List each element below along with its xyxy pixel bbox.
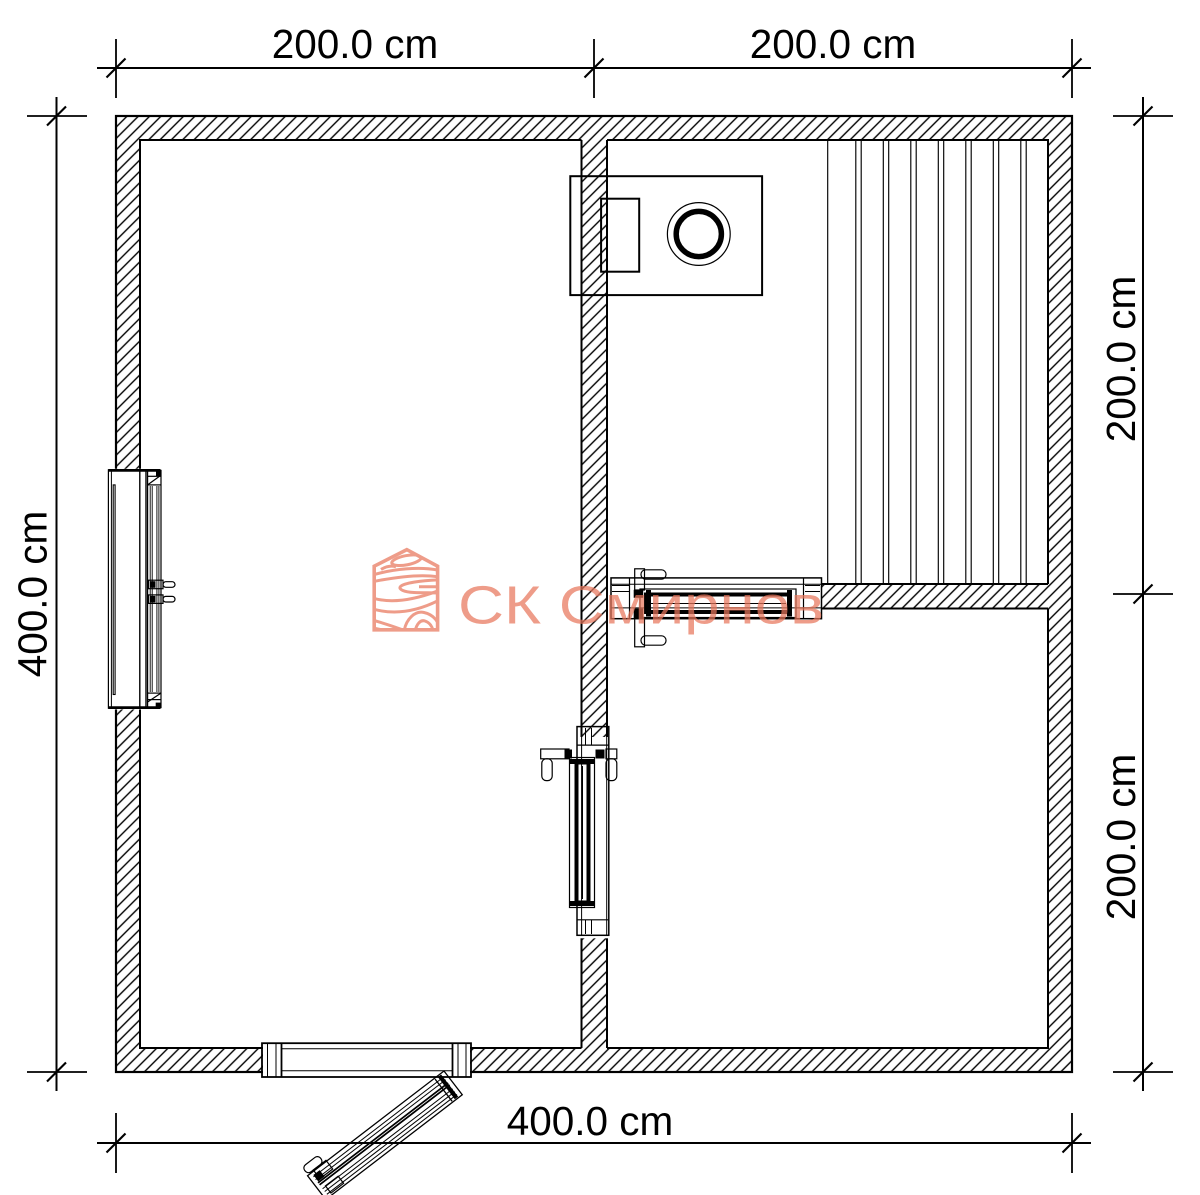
svg-text:400.0 cm: 400.0 cm xyxy=(10,511,56,678)
svg-text:200.0 cm: 200.0 cm xyxy=(1098,276,1144,443)
svg-text:200.0 cm: 200.0 cm xyxy=(750,21,917,67)
svg-text:СК Смирнов: СК Смирнов xyxy=(458,576,824,636)
svg-text:400.0 cm: 400.0 cm xyxy=(507,1098,674,1144)
svg-text:200.0 cm: 200.0 cm xyxy=(272,21,439,67)
svg-text:200.0 cm: 200.0 cm xyxy=(1098,754,1144,921)
